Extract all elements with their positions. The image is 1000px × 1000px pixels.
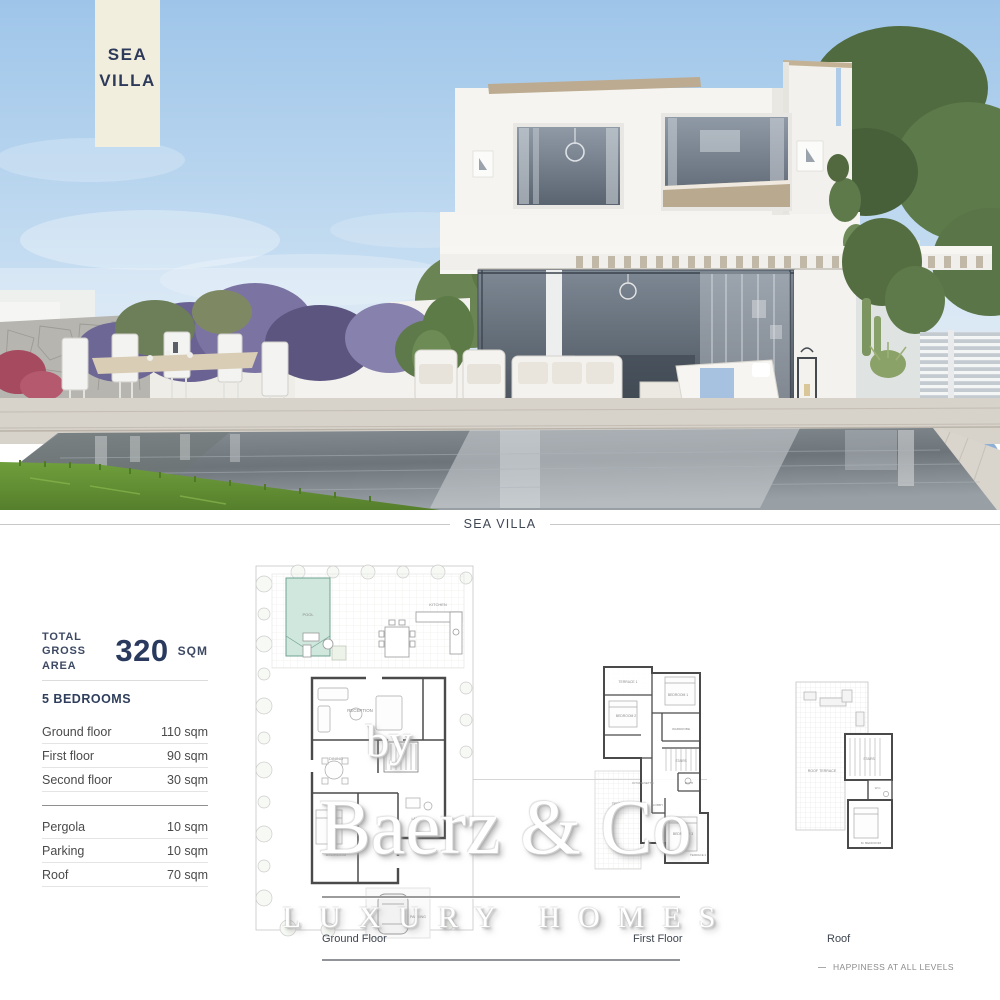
specs-panel: TOTAL GROSS AREA 320 SQM 5 BEDROOMS Grou…	[42, 630, 208, 887]
caption-first-floor: First Floor	[633, 933, 683, 945]
brochure-page: SEA VILLA SEA VILLA TOTAL GROSS AREA 320…	[0, 0, 1000, 1000]
upper-left-window	[513, 123, 624, 209]
total-gross-area-label: TOTAL GROSS AREA	[42, 630, 106, 673]
row-label: Roof	[42, 868, 68, 882]
upper-right-window	[661, 113, 792, 211]
svg-text:TERRACE 1: TERRACE 1	[618, 680, 637, 684]
svg-text:W.C.: W.C.	[875, 786, 882, 790]
row-value: 110 sqm	[161, 725, 208, 739]
table-row-ground-floor: Ground floor 110 sqm	[42, 720, 208, 744]
section-divider-label: SEA VILLA	[450, 517, 551, 531]
badge-title-line1: SEA	[95, 42, 160, 68]
row-value: 30 sqm	[167, 773, 208, 787]
motto-text: HAPPINESS AT ALL LEVELS	[833, 962, 954, 972]
row-label: Ground floor	[42, 725, 111, 739]
row-value: 90 sqm	[167, 749, 208, 763]
total-area-value: 320	[115, 633, 168, 669]
svg-text:POOL: POOL	[302, 612, 314, 617]
svg-text:BEDROOM 2: BEDROOM 2	[616, 714, 636, 718]
floor-plan-ground: POOL KITCHEN	[248, 548, 480, 950]
badge-title-line2: VILLA	[95, 68, 160, 94]
row-value: 70 sqm	[167, 868, 208, 882]
divider-line-right	[550, 524, 1000, 525]
watermark-brand: Baerz & Co	[319, 782, 692, 872]
total-area-unit: SQM	[178, 644, 208, 658]
row-value: 10 sqm	[167, 820, 208, 834]
table-row-parking: Parking 10 sqm	[42, 839, 208, 863]
floor-plan-roof: ROOF TERRACE STAIRS W.C. M. BEDROOM	[790, 672, 912, 864]
svg-text:WARDROBE: WARDROBE	[672, 727, 690, 731]
table-row-first-floor: First floor 90 sqm	[42, 744, 208, 768]
svg-text:STAIRS: STAIRS	[675, 759, 686, 763]
svg-text:ROOF TERRACE: ROOF TERRACE	[808, 769, 837, 773]
row-label: First floor	[42, 749, 94, 763]
caption-underline	[322, 959, 680, 961]
svg-text:RECEPTION: RECEPTION	[347, 708, 373, 713]
footer-motto: HAPPINESS AT ALL LEVELS	[818, 962, 954, 972]
svg-text:DINING: DINING	[329, 756, 343, 761]
floor-areas-table: Ground floor 110 sqm First floor 90 sqm …	[42, 720, 208, 887]
svg-text:STAIRS: STAIRS	[863, 757, 874, 761]
row-label: Pergola	[42, 820, 85, 834]
watermark-by: by	[366, 714, 412, 767]
table-row-second-floor: Second floor 30 sqm	[42, 768, 208, 792]
row-value: 10 sqm	[167, 844, 208, 858]
svg-text:BEDROOM 1: BEDROOM 1	[668, 693, 688, 697]
divider-line-left	[0, 524, 450, 525]
row-label: Second floor	[42, 773, 112, 787]
caption-ground-floor: Ground Floor	[322, 933, 387, 945]
svg-text:KITCHEN: KITCHEN	[429, 602, 447, 607]
svg-text:TERRACE 2: TERRACE 2	[690, 853, 707, 857]
total-gross-area: TOTAL GROSS AREA 320 SQM	[42, 630, 208, 673]
caption-roof: Roof	[827, 933, 850, 945]
svg-text:M. BEDROOM: M. BEDROOM	[861, 841, 882, 845]
property-badge: SEA VILLA	[95, 0, 160, 147]
watermark-tagline: LUXURY HOMES	[283, 901, 734, 935]
bedrooms-label: 5 BEDROOMS	[42, 692, 208, 706]
plan-roof-wc	[868, 780, 892, 800]
specs-divider-middle	[42, 805, 208, 806]
section-divider: SEA VILLA	[0, 517, 1000, 531]
total-label-line2: GROSS AREA	[42, 644, 106, 673]
table-row-pergola: Pergola 10 sqm	[42, 815, 208, 839]
watermark-line	[322, 896, 680, 898]
row-label: Parking	[42, 844, 84, 858]
total-label-line1: TOTAL	[42, 630, 106, 644]
motto-dash	[818, 967, 826, 968]
table-row-roof: Roof 70 sqm	[42, 863, 208, 887]
specs-divider-top	[42, 680, 208, 681]
